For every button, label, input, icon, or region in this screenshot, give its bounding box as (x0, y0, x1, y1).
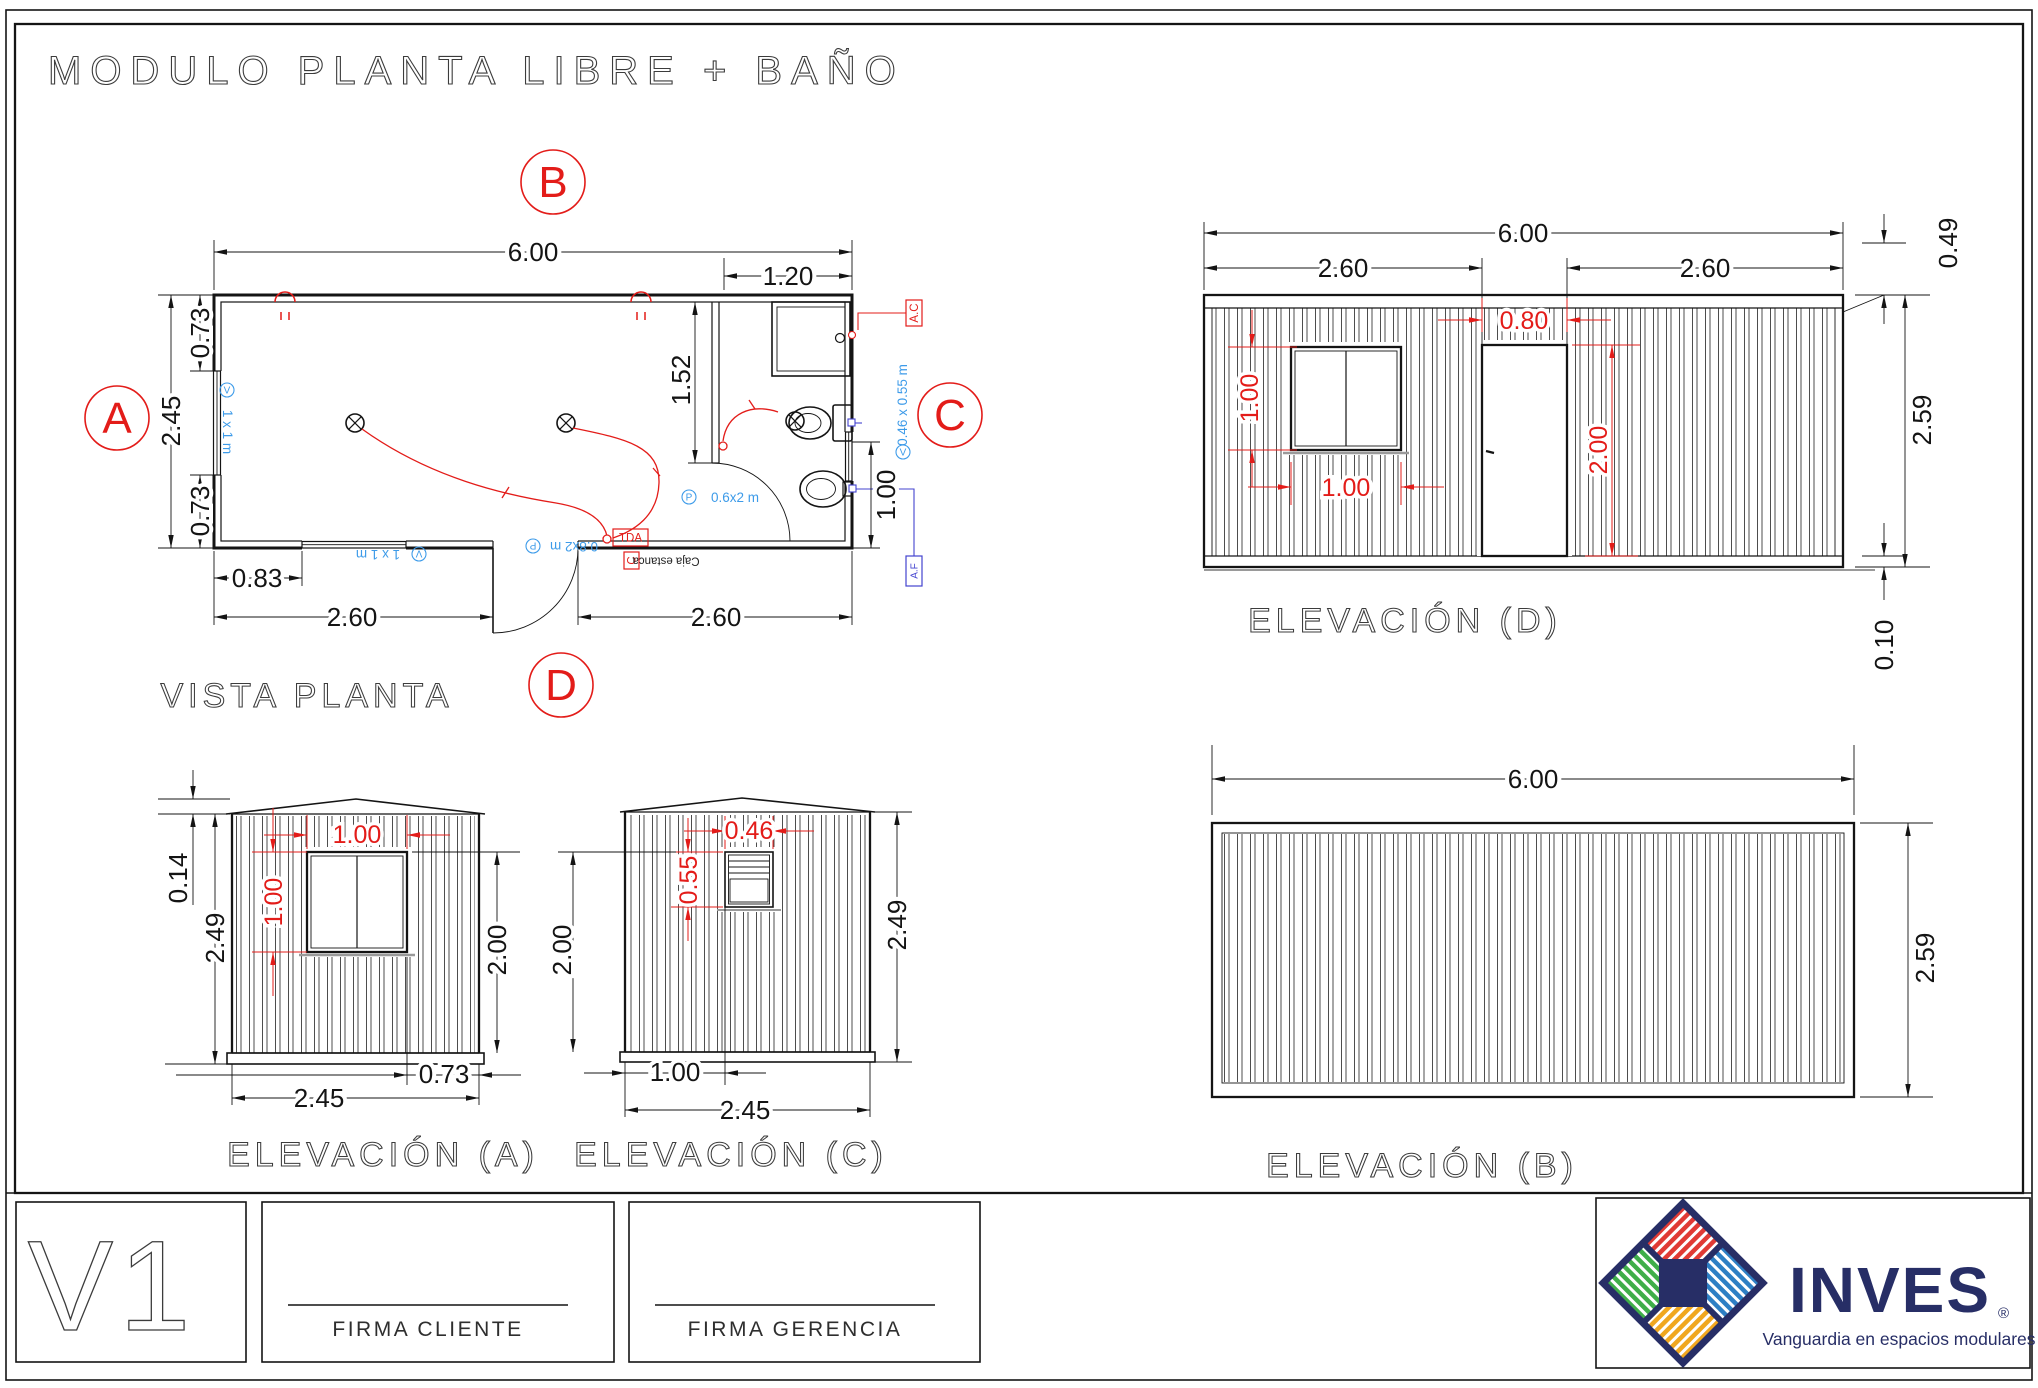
dim-c-height: 2.49 (882, 900, 912, 951)
door-bath-symbol: P (686, 493, 693, 504)
dim-span-left: 2.60 (327, 602, 378, 632)
dim-a-width: 2.45 (294, 1083, 345, 1113)
dim-a-height: 2.49 (200, 913, 230, 964)
elev-d-door (1477, 340, 1572, 556)
firma-gerencia-label: FIRMA GERENCIA (688, 1318, 903, 1341)
dim-a-window-height: 1.00 (260, 878, 288, 927)
dim-c-window-width: 0.46 (725, 817, 774, 845)
dim-d-door-height: 2.00 (1585, 426, 1613, 475)
door-main-symbol: P (529, 540, 536, 551)
dim-d-total: 6.00 (1498, 218, 1549, 248)
tda-label: TDA (619, 533, 642, 545)
dim-d-height: 2.59 (1907, 395, 1937, 446)
window-bottom-size: 1 x 1 m (356, 547, 400, 562)
dim-a-offset: 0.73 (419, 1059, 470, 1089)
opening-annotations: V 1 x 1 m V 1 x 1 m P 0.8x2 m P 0.6x2 m … (220, 364, 910, 562)
version-label: V1 (28, 1215, 197, 1358)
dim-span-right: 2.60 (691, 602, 742, 632)
dim-plan-top-offset: 0.73 (185, 308, 215, 359)
drawing-sheet: MODULO PLANTA LIBRE + BAÑO (0, 0, 2038, 1388)
title-block: V1 FIRMA CLIENTE FIRMA GERENCIA INVES ® … (16, 1198, 2036, 1368)
dim-a-window-width: 1.00 (333, 821, 382, 849)
registered-mark: ® (1998, 1305, 2009, 1322)
sheet-title: MODULO PLANTA LIBRE + BAÑO (48, 48, 905, 93)
door-main-size: 0.8x2 m (550, 539, 598, 554)
dim-c-width: 2.45 (720, 1095, 771, 1125)
cold-water-tag: A.F (910, 563, 921, 579)
dim-c-offset: 1.00 (650, 1057, 701, 1087)
elev-c-window (717, 847, 781, 912)
dim-d-window-height: 1.00 (1236, 374, 1264, 423)
dim-window-offset: 0.83 (232, 563, 283, 593)
light-fixture-icon (346, 414, 575, 432)
dim-b-width: 6.00 (1508, 764, 1559, 794)
dim-bath-depth: 1.52 (666, 355, 696, 406)
firma-cliente-label: FIRMA CLIENTE (332, 1318, 523, 1341)
window-bath-symbol: V (900, 448, 907, 459)
hot-water-tag: A.C (909, 303, 921, 322)
hot-water-line (849, 313, 907, 339)
dim-plan-width: 6.00 (508, 237, 559, 267)
elev-a-window (299, 847, 415, 957)
shower (772, 302, 850, 376)
brand-name: INVES (1789, 1254, 1991, 1326)
plan-view: A.C A.F TDA C Caja estanca V 1 x 1 m V 1… (85, 150, 982, 717)
dim-d-base: 0.10 (1869, 620, 1899, 671)
elevation-a-caption: ELEVACIÓN (A) (227, 1136, 539, 1174)
dim-d-roof: 0.49 (1933, 218, 1963, 269)
dim-plan-bath-width: 1.20 (763, 261, 814, 291)
inves-logo-icon (1598, 1198, 1768, 1368)
dim-a-roof: 0.14 (163, 853, 193, 904)
dim-d-right: 2.60 (1680, 253, 1731, 283)
dim-d-left: 2.60 (1318, 253, 1369, 283)
elevation-c: 0.46 0.55 2.00 2.49 1.00 2.45 ELEVACI (547, 798, 912, 1174)
dim-b-height: 2.59 (1910, 933, 1940, 984)
dim-d-window-width: 1.00 (1322, 474, 1371, 502)
marker-a: A (102, 394, 132, 443)
dim-a-wall: 2.00 (482, 925, 512, 976)
elev-d-window (1283, 342, 1409, 455)
junction-box-label: Caja estanca (632, 555, 700, 567)
dim-d-door-width: 0.80 (1500, 307, 1549, 335)
elevation-d-caption: ELEVACIÓN (D) (1248, 602, 1562, 640)
electrical-wiring (362, 400, 778, 543)
elevation-c-caption: ELEVACIÓN (C) (574, 1136, 888, 1174)
cad-canvas: MODULO PLANTA LIBRE + BAÑO (0, 0, 2038, 1388)
dim-c-window-height: 0.55 (675, 856, 703, 905)
door-bath-size: 0.6x2 m (711, 490, 759, 505)
window-bottom-symbol: V (415, 548, 422, 559)
dim-c-wall: 2.00 (547, 925, 577, 976)
window-left-symbol: V (224, 386, 231, 397)
elevation-b-caption: ELEVACIÓN (B) (1266, 1147, 1578, 1185)
brand-tagline: Vanguardia en espacios modulares (1762, 1329, 2035, 1349)
dim-plan-depth: 2.45 (156, 396, 186, 447)
window-bath-size: 0.46 x 0.55 m (895, 364, 910, 446)
dim-plan-bottom-offset: 0.73 (185, 486, 215, 537)
window-left-size: 1 x 1 m (220, 410, 235, 454)
dim-bath-clear: 1.00 (871, 470, 901, 521)
elevation-d: 6.00 2.60 2.60 0.80 2.00 1.00 (1204, 214, 1963, 670)
elevation-a: 0.14 2.49 1.00 1.00 2.00 0.73 (158, 770, 539, 1174)
marker-d: D (545, 661, 577, 710)
toilet (789, 405, 852, 441)
elevation-b: 6.00 2.59 ELEVACIÓN (B) (1212, 745, 1940, 1185)
marker-b: B (538, 158, 567, 207)
plan-caption: VISTA PLANTA (160, 677, 453, 715)
marker-c: C (934, 391, 966, 440)
